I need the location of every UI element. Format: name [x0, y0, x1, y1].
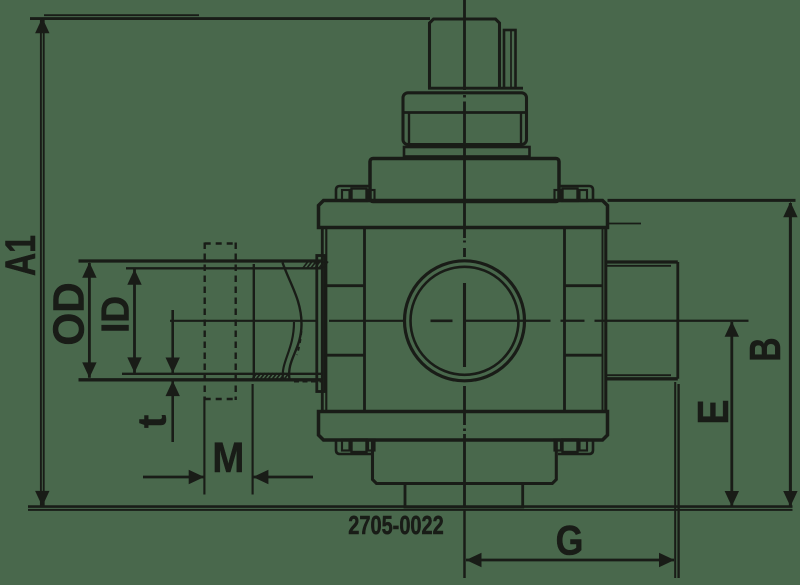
- svg-text:M: M: [212, 433, 244, 482]
- svg-text:2705-0022: 2705-0022: [348, 512, 444, 540]
- svg-text:ID: ID: [95, 296, 138, 333]
- svg-text:E: E: [688, 400, 738, 425]
- svg-text:A1: A1: [0, 235, 44, 276]
- svg-text:OD: OD: [45, 282, 94, 345]
- svg-text:B: B: [742, 337, 790, 361]
- svg-text:G: G: [556, 518, 584, 564]
- svg-text:t: t: [131, 415, 175, 428]
